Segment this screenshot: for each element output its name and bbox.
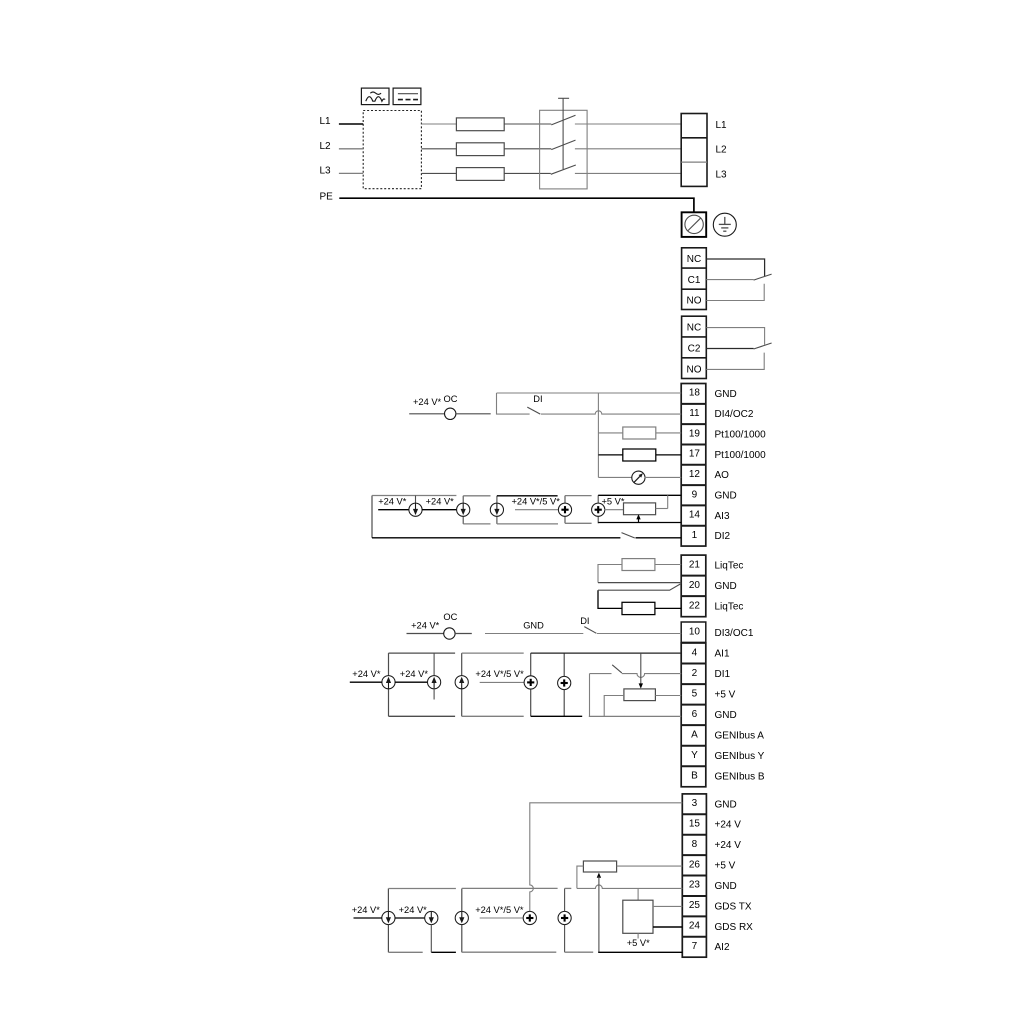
svg-text:+24 V: +24 V <box>715 840 742 851</box>
svg-text:+24 V*/5 V*: +24 V*/5 V* <box>475 905 524 915</box>
svg-text:OC: OC <box>443 612 457 622</box>
svg-text:C1: C1 <box>688 275 701 286</box>
svg-text:14: 14 <box>689 510 701 521</box>
svg-text:23: 23 <box>689 880 701 891</box>
svg-text:GND: GND <box>715 799 737 810</box>
svg-text:+24 V*: +24 V* <box>378 497 407 507</box>
svg-text:25: 25 <box>689 900 701 911</box>
svg-text:AI2: AI2 <box>715 942 730 953</box>
svg-text:GND: GND <box>715 881 737 892</box>
svg-text:11: 11 <box>689 408 700 419</box>
svg-text:GENIbus A: GENIbus A <box>715 731 765 742</box>
svg-text:7: 7 <box>692 941 698 952</box>
svg-text:+24 V*: +24 V* <box>352 669 381 679</box>
svg-text:+24 V*: +24 V* <box>399 905 428 915</box>
svg-text:22: 22 <box>689 600 701 611</box>
svg-text:GND: GND <box>715 490 737 501</box>
svg-text:GDS TX: GDS TX <box>715 901 752 912</box>
svg-text:LiqTec: LiqTec <box>715 561 744 572</box>
svg-text:+24 V*: +24 V* <box>426 497 455 507</box>
svg-text:+24 V*: +24 V* <box>413 397 442 407</box>
svg-text:15: 15 <box>689 819 701 830</box>
svg-text:NC: NC <box>687 323 701 334</box>
svg-text:+24 V*/5 V*: +24 V*/5 V* <box>475 669 524 679</box>
svg-text:4: 4 <box>692 647 698 658</box>
svg-text:+5 V*: +5 V* <box>627 938 650 948</box>
svg-text:L1: L1 <box>716 120 728 131</box>
svg-text:GND: GND <box>715 710 737 721</box>
svg-text:GENIbus B: GENIbus B <box>715 772 765 783</box>
svg-text:+5 V*: +5 V* <box>602 496 625 506</box>
svg-text:10: 10 <box>689 626 701 637</box>
svg-text:Pt100/1000: Pt100/1000 <box>715 430 767 441</box>
svg-text:GENIbus Y: GENIbus Y <box>715 751 765 762</box>
svg-text:GDS RX: GDS RX <box>715 922 754 933</box>
svg-text:GND: GND <box>523 621 544 631</box>
svg-text:21: 21 <box>689 559 701 570</box>
svg-text:26: 26 <box>689 859 701 870</box>
svg-text:AI1: AI1 <box>715 648 730 659</box>
svg-text:+24 V*: +24 V* <box>411 621 440 631</box>
svg-text:DI: DI <box>533 394 542 404</box>
svg-text:Y: Y <box>691 750 698 761</box>
svg-text:L2: L2 <box>320 141 332 152</box>
svg-text:B: B <box>691 771 698 782</box>
svg-text:20: 20 <box>689 580 701 591</box>
svg-text:6: 6 <box>692 709 698 720</box>
svg-text:17: 17 <box>689 449 701 460</box>
svg-text:+5 V: +5 V <box>715 861 736 872</box>
svg-text:C2: C2 <box>688 344 701 355</box>
svg-text:L3: L3 <box>320 165 332 176</box>
svg-text:3: 3 <box>692 798 698 809</box>
svg-text:24: 24 <box>689 921 701 932</box>
svg-text:19: 19 <box>689 428 701 439</box>
svg-text:GND: GND <box>715 389 737 400</box>
svg-text:DI: DI <box>580 616 589 626</box>
svg-text:DI3/OC1: DI3/OC1 <box>715 628 754 639</box>
svg-text:12: 12 <box>689 469 701 480</box>
svg-text:L2: L2 <box>716 145 728 156</box>
svg-text:DI1: DI1 <box>715 669 731 680</box>
svg-text:+24 V*/5 V*: +24 V*/5 V* <box>512 497 561 507</box>
svg-text:5: 5 <box>692 688 698 699</box>
svg-text:LiqTec: LiqTec <box>715 602 744 613</box>
svg-text:L3: L3 <box>716 169 728 180</box>
svg-text:1: 1 <box>692 530 698 541</box>
svg-text:AO: AO <box>715 470 730 481</box>
svg-text:DI2: DI2 <box>715 531 731 542</box>
svg-text:GND: GND <box>715 581 737 592</box>
svg-text:+24 V*: +24 V* <box>400 669 429 679</box>
svg-text:+5 V: +5 V <box>715 690 736 701</box>
svg-text:Pt100/1000: Pt100/1000 <box>715 450 767 461</box>
svg-text:A: A <box>691 729 698 740</box>
svg-text:OC: OC <box>444 394 458 404</box>
svg-text:AI3: AI3 <box>715 511 730 522</box>
svg-text:NO: NO <box>687 364 702 375</box>
svg-text:PE: PE <box>320 192 334 203</box>
svg-text:2: 2 <box>692 668 698 679</box>
svg-text:NC: NC <box>687 254 701 265</box>
svg-text:+24 V*: +24 V* <box>352 905 381 915</box>
svg-text:DI4/OC2: DI4/OC2 <box>715 409 754 420</box>
svg-text:NO: NO <box>687 296 702 307</box>
svg-text:8: 8 <box>692 839 698 850</box>
svg-text:+24 V: +24 V <box>715 820 742 831</box>
svg-text:9: 9 <box>692 489 698 500</box>
svg-text:L1: L1 <box>320 116 332 127</box>
svg-text:18: 18 <box>689 388 701 399</box>
